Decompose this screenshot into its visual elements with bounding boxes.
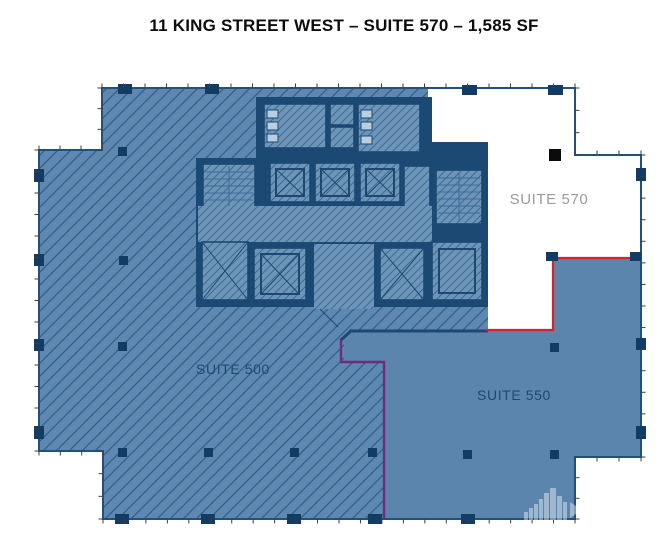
elevator-lobby [198, 206, 432, 242]
service-cell-2 [330, 127, 354, 148]
floor-plan-svg: SUITE 570 SUITE 500 SUITE 550 C [0, 0, 664, 538]
stairwell-right [436, 170, 482, 224]
column-marker-suite570 [549, 149, 561, 161]
suite-500-label: SUITE 500 [196, 361, 270, 377]
suite-570-label: SUITE 570 [510, 191, 589, 208]
suite-550-label: SUITE 550 [477, 387, 551, 403]
service-cell-1 [330, 104, 354, 125]
corridor [314, 244, 374, 309]
svg-text:C: C [584, 499, 592, 511]
floor-plan-page: 11 KING STREET WEST – SUITE 570 – 1,585 … [0, 0, 664, 538]
